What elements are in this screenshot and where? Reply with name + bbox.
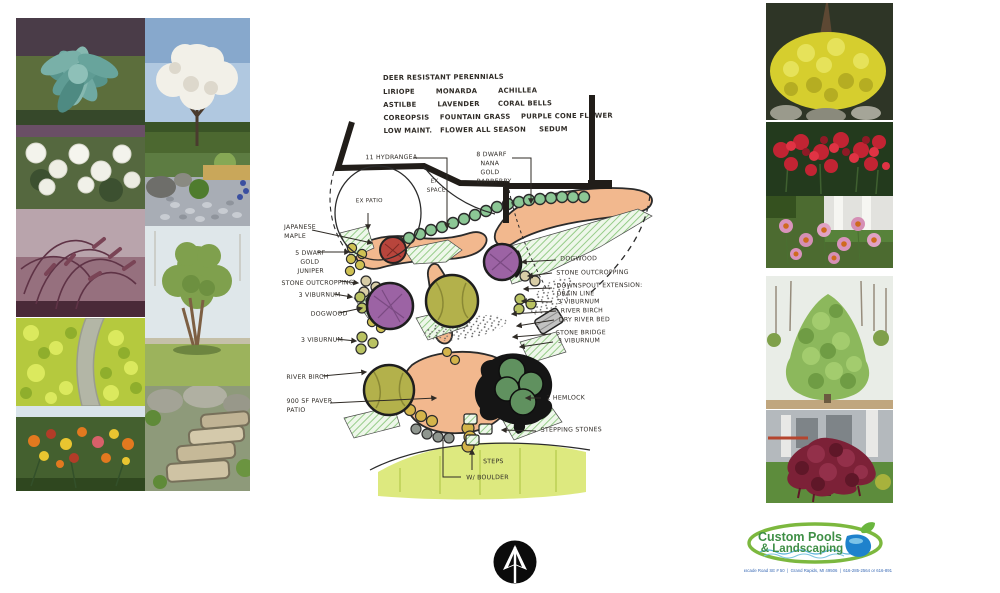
photo-river-birch-tree — [145, 226, 250, 386]
label-juniper-2: GOLD — [300, 259, 319, 266]
label-dogwood-l: DOGWOOD — [311, 310, 348, 317]
plant-list-line-3: COREOPSIS FOUNTAIN GRASS PURPLE CONE FLO… — [383, 112, 613, 122]
photo-gold-barberry-shrub — [766, 3, 893, 120]
photo-hemlock-tree — [766, 276, 893, 409]
label-viburnum-l1: 3 VIBURNUM — [299, 291, 341, 298]
weeping-japanese-maple-image — [766, 410, 893, 503]
photo-daylilies — [16, 406, 145, 491]
plan-svg: DEER RESISTANT PERENNIALS LIRIOPE MONARD… — [270, 58, 694, 510]
label-barberry-3: GOLD — [481, 169, 500, 176]
label-barberry-1: 8 DWARF — [476, 151, 507, 158]
photo-white-flowering-tree — [145, 18, 250, 153]
plant-list: DEER RESISTANT PERENNIALS LIRIOPE MONARD… — [383, 72, 614, 135]
lawn — [370, 442, 590, 499]
hemlock-tree-image — [766, 276, 893, 409]
porch-stoop — [588, 180, 612, 189]
company-logo: Custom Pools & Landscaping 8787 Cascade … — [744, 514, 892, 580]
gold-sedum-path-image — [16, 318, 145, 406]
rock-garden-image — [145, 153, 250, 226]
label-hemlock: 2 HEMLOCK — [546, 394, 585, 401]
purple-fountain-grass-image — [16, 209, 145, 317]
stone-slab-steps-image — [145, 386, 250, 491]
label-juniper-3: JUNIPER — [296, 268, 324, 275]
gold-barberry-image — [766, 3, 893, 120]
logo-address: 8787 Cascade Road SE # 50 | Grand Rapids… — [744, 568, 892, 573]
company-logo-svg: Custom Pools & Landscaping 8787 Cascade … — [744, 514, 892, 580]
label-jap-maple-2: MAPLE — [284, 233, 306, 240]
river-birch-circle-bottom — [364, 365, 414, 415]
label-viburnum-r2: 3 VIBURNUM — [558, 337, 600, 344]
north-arrow-icon — [492, 539, 538, 585]
white-flowering-tree-image — [145, 18, 250, 153]
daylilies-image — [16, 406, 145, 491]
logo-leaf-icon — [860, 522, 875, 533]
photo-purple-fountain-grass — [16, 209, 145, 317]
plant-list-line-4: LOW MAINT. FLOWER ALL SEASON SEDUM — [384, 125, 568, 135]
photo-purple-coneflower — [766, 196, 893, 268]
north-arrow-svg — [492, 539, 538, 585]
photo-annabelle-hydrangea — [16, 125, 145, 209]
label-juniper-1: 5 DWARF — [295, 250, 326, 257]
label-river-birch-l: RIVER BIRCH — [286, 374, 328, 381]
label-paver-patio-1: 900 SF PAVER — [287, 398, 333, 405]
dogwood-circle-left — [367, 283, 413, 329]
label-downspout-1: DOWNSPOUT EXTENSION: — [557, 282, 643, 290]
label-jap-maple-1: JAPANESE — [283, 224, 316, 231]
plant-list-title: DEER RESISTANT PERENNIALS — [383, 73, 504, 82]
label-barberry-2: NANA — [480, 160, 499, 167]
label-stepping-stones: STEPPING STONES — [541, 426, 602, 434]
label-river-birch-r: RIVER BIRCH — [561, 307, 603, 314]
logo-name-line1: Custom Pools — [758, 530, 842, 544]
dogwood-circle-right — [484, 244, 522, 280]
blue-hosta-image — [16, 18, 145, 125]
river-birch-tree-image — [145, 226, 250, 386]
annabelle-hydrangea-image — [16, 125, 145, 209]
label-ex-space-1: EX — [431, 179, 439, 185]
label-barberry-4: BARBERRY — [477, 178, 512, 185]
label-viburnum-r1: 3 VIBURNUM — [558, 298, 600, 305]
landscape-plan-sketch: DEER RESISTANT PERENNIALS LIRIOPE MONARD… — [270, 58, 694, 510]
label-viburnum-l2: 3 VIBURNUM — [301, 336, 343, 343]
logo-pool-highlight — [849, 538, 863, 544]
label-w-boulder: W/ BOULDER — [466, 474, 509, 481]
purple-coneflower-image — [766, 196, 893, 268]
label-steps: STEPS — [483, 458, 504, 465]
label-stone-bridge: STONE BRIDGE — [556, 329, 606, 336]
label-downspout-2: DRAIN LINE — [557, 290, 595, 297]
label-ex-patio: EX PATIO — [356, 198, 383, 204]
photo-gold-sedum-path — [16, 318, 145, 406]
label-stone-outcropping-r: STONE OUTCROPPING — [556, 269, 628, 277]
label-paver-patio-2: PATIO — [287, 407, 306, 414]
label-stone-outcropping-l: STONE OUTCROPPING — [281, 279, 353, 287]
photo-blue-hosta — [16, 18, 145, 125]
label-dogwood-r: DOGWOOD — [560, 255, 597, 262]
red-monarda-image — [766, 122, 893, 196]
label-dry-river-bed: DRY RIVER BED — [559, 316, 610, 323]
design-board: DEER RESISTANT PERENNIALS LIRIOPE MONARD… — [0, 0, 1000, 593]
label-hydrangea: 11 HYDRANGEA — [365, 154, 417, 161]
photo-stone-slab-steps — [145, 386, 250, 491]
river-birch-circle-center — [426, 275, 478, 327]
photo-red-monarda — [766, 122, 893, 196]
photo-weeping-japanese-maple — [766, 410, 893, 503]
logo-name-line2: & Landscaping — [761, 543, 843, 555]
plant-list-line-2: ASTILBE LAVENDER CORAL BELLS — [383, 99, 552, 109]
photo-rock-garden — [145, 153, 250, 226]
label-ex-space-2: SPACE — [427, 188, 446, 194]
plant-list-line-1: LIRIOPE MONARDA ACHILLEA — [383, 86, 538, 96]
